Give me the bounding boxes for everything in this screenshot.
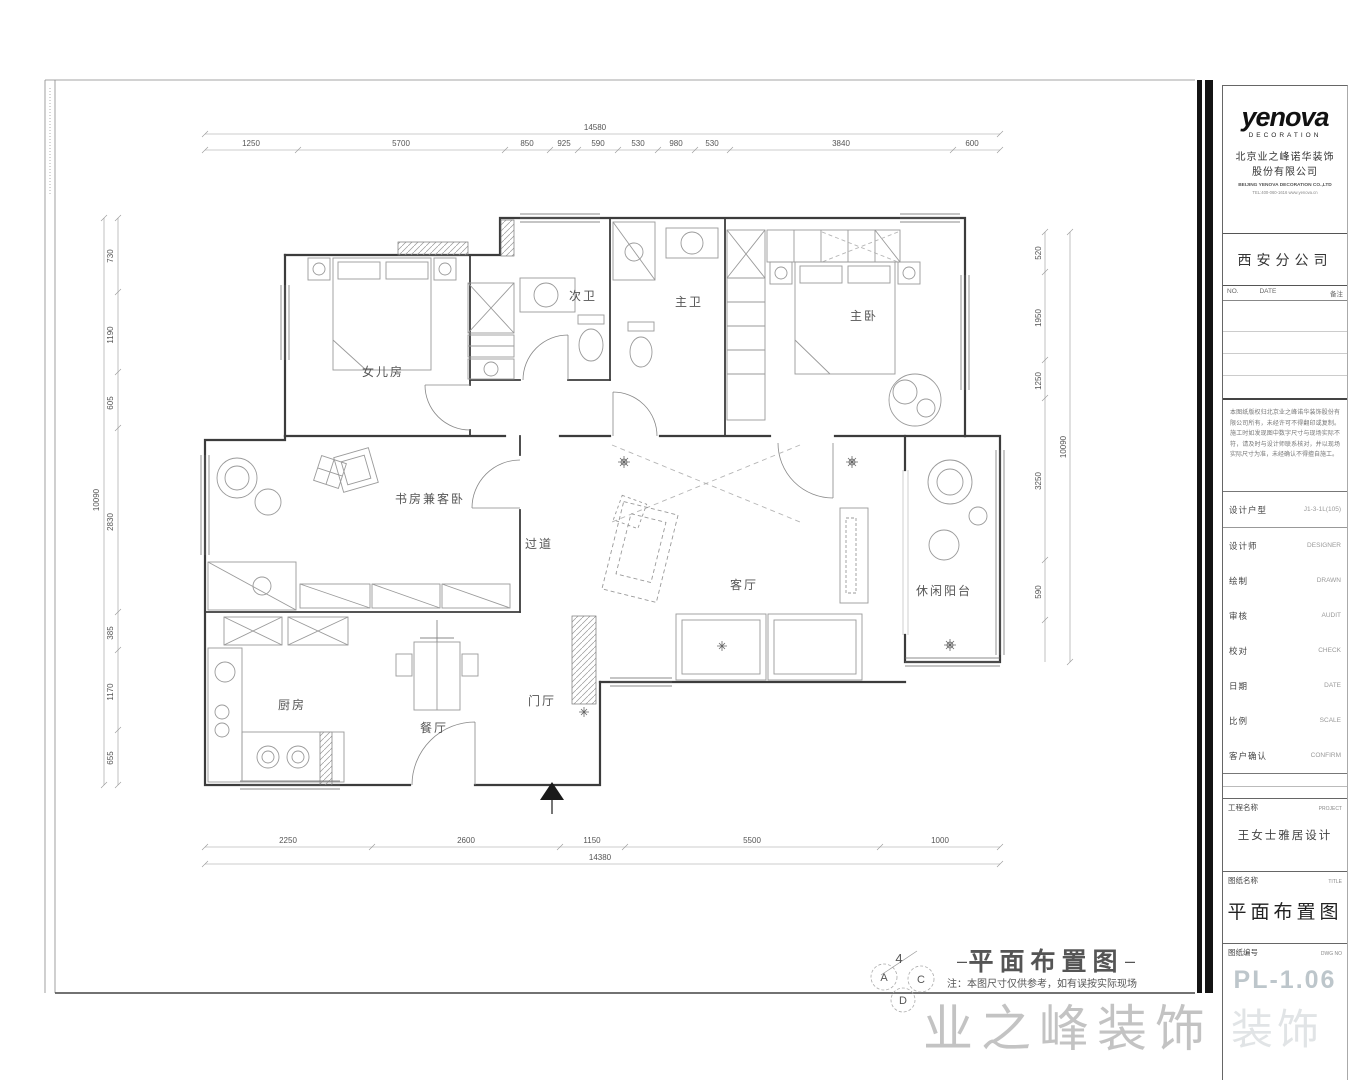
dim-right-total: 10090 [1059, 435, 1068, 458]
drawing-sheet: 女儿房 次卫 主卫 主卧 书房兼客卧 过道 客厅 休闲阳台 厨房 餐厅 门厅 [0, 0, 1350, 1080]
dimensions [101, 131, 1073, 867]
rev-no: NO. [1227, 288, 1259, 298]
window-bath-top [520, 214, 600, 222]
window-living-bottom [610, 678, 672, 686]
field-label: 绘制 [1229, 575, 1248, 587]
field-table: 设计户型 J1-3-1L(105) 设计师 DESIGNER 绘制 DRAWN … [1223, 491, 1347, 773]
field-row: 设计师 DESIGNER [1223, 528, 1347, 563]
room-label-balcony: 休闲阳台 [916, 583, 972, 598]
dim: 3840 [832, 139, 850, 148]
room-label-dining: 餐厅 [420, 720, 448, 735]
brand-logo: yenova [1223, 104, 1347, 131]
drawing-name: 平面布置图 [1223, 897, 1347, 924]
dim: 5700 [392, 139, 410, 148]
balcony-furniture [928, 460, 987, 560]
living-room-furniture [602, 445, 868, 680]
dim: 2250 [279, 836, 297, 845]
dim: 590 [1034, 585, 1043, 599]
revision-header: NO. DATE 备注 [1223, 286, 1347, 301]
walls-interior [205, 218, 725, 612]
dim: 530 [631, 139, 645, 148]
doors [412, 335, 833, 785]
company-name-en: BEIJING YENOVA DECORATION CO.,LTD [1223, 183, 1347, 188]
dim: 2600 [457, 836, 475, 845]
window-study [201, 455, 209, 555]
dim: 605 [106, 396, 115, 410]
dim: 385 [106, 626, 115, 640]
master-bedroom-door [778, 443, 833, 498]
drawing-number: PL-1.06 [1223, 966, 1347, 995]
dim: 2830 [106, 513, 115, 531]
brand-sub: DECORATION [1223, 132, 1347, 139]
room-label-second-bath: 次卫 [569, 289, 597, 303]
wardrobe-column [468, 283, 514, 379]
field-row: 客户确认 CONFIRM [1223, 738, 1347, 773]
field-row: 比例 SCALE [1223, 703, 1347, 738]
title-block: yenova DECORATION 北京业之峰诺华装饰 股份有限公司 BEIJI… [1222, 85, 1348, 1080]
room-label-study: 书房兼客卧 [395, 491, 465, 506]
field-value: DATE [1324, 682, 1341, 689]
dim: 600 [965, 139, 979, 148]
dim: 925 [557, 139, 571, 148]
shoe-cabinet [572, 616, 596, 704]
dim: 1000 [931, 836, 949, 845]
room-label-master-bedroom: 主卧 [850, 309, 878, 323]
master-bath-door [613, 392, 657, 436]
field-label: 校对 [1229, 645, 1248, 657]
dim-top-total: 14580 [584, 123, 607, 132]
windows [201, 214, 1004, 789]
dim: 850 [520, 139, 534, 148]
marker-a: A [880, 972, 888, 984]
branch-name: 西安分公司 [1223, 233, 1347, 285]
watermark-text: 业之峰装饰 [923, 1001, 1213, 1057]
company-header: yenova DECORATION 北京业之峰诺华装饰 股份有限公司 BEIJI… [1223, 86, 1347, 233]
project-name: 王女士雅居设计 [1223, 827, 1347, 843]
dim: 520 [1034, 246, 1043, 260]
dim: 530 [705, 139, 719, 148]
company-info: TEL:400-060-1616 www.yenova.cn [1223, 190, 1347, 195]
number-label-en: DWG NO [1321, 951, 1342, 957]
drawing-label: 图纸名称 [1228, 875, 1258, 886]
field-value: CHECK [1318, 647, 1341, 654]
master-bedroom-furniture [767, 230, 941, 426]
field-label: 设计师 [1229, 540, 1258, 552]
project-label: 工程名称 [1228, 802, 1258, 813]
dim: 590 [591, 139, 605, 148]
study-furniture [208, 448, 510, 610]
dim-bottom-total: 14380 [589, 853, 612, 862]
walls-exterior [205, 218, 1000, 785]
field-row: 审核 AUDIT [1223, 598, 1347, 633]
room-label-daughter: 女儿房 [362, 364, 404, 379]
dim: 980 [669, 139, 683, 148]
field-row: 绘制 DRAWN [1223, 563, 1347, 598]
dim: 1170 [106, 683, 115, 701]
room-label-living: 客厅 [730, 577, 758, 592]
revision-row [1223, 332, 1347, 354]
bed-daughter [308, 258, 456, 370]
rev-date: DATE [1259, 288, 1308, 298]
field-value: SCALE [1320, 717, 1341, 724]
second-bath-door [523, 335, 568, 380]
dim: 1150 [583, 836, 601, 845]
field-value: DRAWN [1317, 577, 1341, 584]
window-balcony-side [996, 450, 1004, 655]
field-value: DESIGNER [1307, 542, 1341, 549]
title-dash-left: – [957, 951, 967, 971]
field-label: 审核 [1229, 610, 1248, 622]
window-balcony-bottom [905, 658, 1000, 666]
field-value: AUDIT [1322, 612, 1342, 619]
dim: 1250 [1034, 372, 1043, 390]
company-name-cn2: 股份有限公司 [1223, 163, 1347, 178]
window-daughter-room [281, 285, 289, 360]
dim: 655 [106, 751, 115, 765]
field-row: 校对 CHECK [1223, 633, 1347, 668]
room-label-corridor: 过道 [525, 537, 553, 551]
dim: 1190 [106, 326, 115, 344]
rev-remark: 备注 [1330, 288, 1343, 298]
dim: 3250 [1034, 472, 1043, 490]
title-dash-right: – [1125, 951, 1135, 971]
field-value: CONFIRM [1311, 752, 1341, 759]
company-name-cn1: 北京业之峰诺华装饰 [1223, 148, 1347, 163]
window-top-right [900, 214, 960, 222]
plan-title: 平面布置图 [968, 947, 1123, 976]
project-label-en: PROJECT [1319, 806, 1342, 812]
spacer-rows [1223, 773, 1347, 798]
title-block-watermark: 装饰 [1231, 996, 1323, 1057]
dim-left-total: 10090 [92, 488, 101, 511]
drawing-name-section: 图纸名称 TITLE 平面布置图 [1223, 871, 1347, 943]
study-door [472, 460, 520, 508]
revision-row [1223, 301, 1347, 332]
tv-cabinet [840, 508, 868, 603]
field-row: 日期 DATE [1223, 668, 1347, 703]
room-label-kitchen: 厨房 [278, 697, 306, 712]
dimension-labels: 14580 1250 5700 850 925 590 530 980 530 … [92, 123, 1068, 862]
drawing-label-en: TITLE [1328, 879, 1342, 885]
revision-table: NO. DATE 备注 [1223, 285, 1347, 398]
drawing-title-area: – 平面布置图 – 注：本图尺寸仅供参考，如有误按实际现场 [947, 947, 1137, 990]
daughter-room-door [425, 385, 470, 430]
field-label: 客户确认 [1229, 750, 1267, 762]
binding-bars [1197, 80, 1213, 993]
field-label: 比例 [1229, 715, 1248, 727]
window-master-bedroom [961, 275, 969, 390]
linen-closet [727, 230, 765, 420]
copyright-notes: 本图纸版权归北京业之峰诺华装饰股份有限公司所有，未经许可不得翻印或复制。施工时如… [1223, 398, 1347, 491]
dim: 730 [106, 249, 115, 263]
reference-marker-labels: 4 A C D [880, 951, 925, 1007]
balcony-threshold [903, 470, 908, 635]
field-label: 设计户型 [1229, 504, 1267, 516]
number-label: 图纸编号 [1228, 947, 1258, 958]
dining-furniture [396, 620, 478, 710]
furniture [208, 222, 987, 782]
room-label-master-bath: 主卫 [675, 295, 703, 309]
plan-note: 注：本图尺寸仅供参考，如有误按实际现场 [947, 977, 1137, 990]
project-section: 工程名称 PROJECT 王女士雅居设计 [1223, 798, 1347, 871]
entry-marker [540, 782, 564, 814]
dim: 1950 [1034, 309, 1043, 327]
marker-d: D [899, 995, 907, 1007]
drawing-number-section: 图纸编号 DWG NO PL-1.06 装饰 [1223, 943, 1347, 1080]
dim: 1250 [242, 139, 260, 148]
floor-plan-canvas: 女儿房 次卫 主卫 主卧 书房兼客卧 过道 客厅 休闲阳台 厨房 餐厅 门厅 [0, 0, 1350, 1080]
room-label-foyer: 门厅 [528, 693, 556, 708]
field-value: J1-3-1L(105) [1304, 506, 1341, 513]
revision-row [1223, 354, 1347, 376]
field-label: 日期 [1229, 680, 1248, 692]
dim: 5500 [743, 836, 761, 845]
marker-num: 4 [895, 951, 902, 966]
field-row: 设计户型 J1-3-1L(105) [1223, 492, 1347, 528]
marker-c: C [917, 974, 925, 986]
rug [889, 374, 941, 426]
